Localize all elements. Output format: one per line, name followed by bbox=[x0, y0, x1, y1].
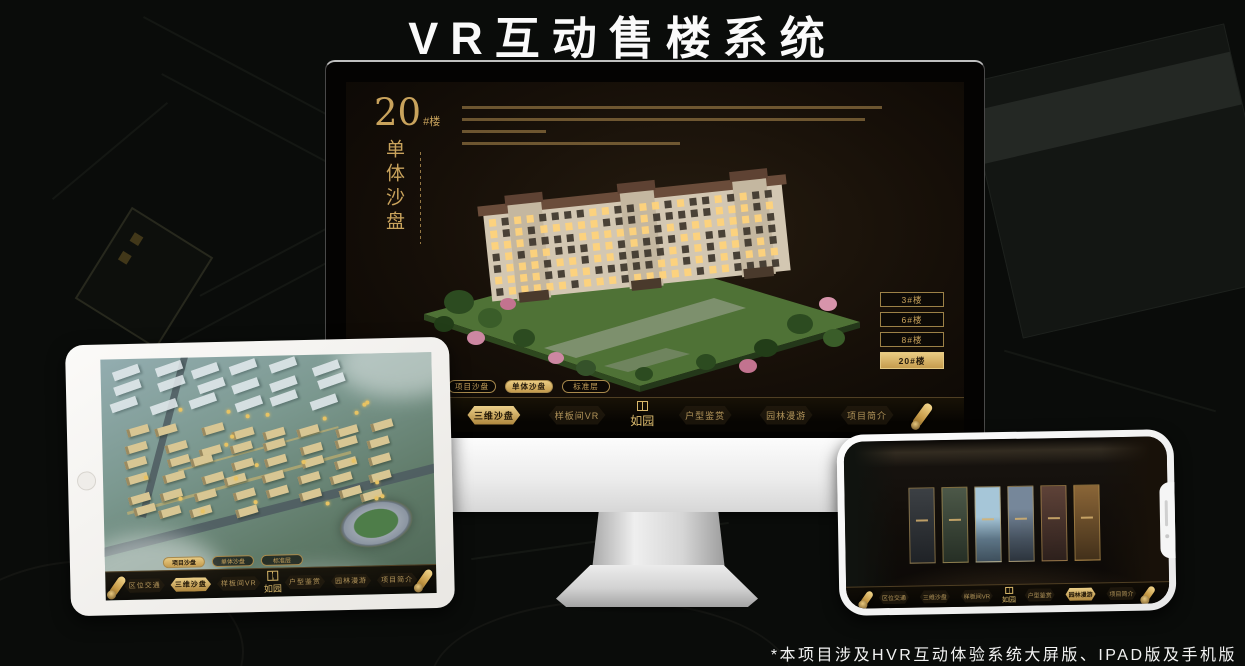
background-plaque bbox=[75, 207, 214, 349]
nav-item-showroom-vr[interactable]: 样板间VR bbox=[545, 406, 610, 425]
aerial-building bbox=[261, 469, 284, 483]
floor-button-list: 3#楼 6#楼 8#楼 20#楼 bbox=[880, 292, 944, 374]
phone-device: 区位交通 三维沙盘 样板间VR 如园 户型鉴赏 园林漫游 项目简介 bbox=[836, 429, 1176, 616]
page-root: VR互动售楼系统 20#楼 单体沙盘 bbox=[0, 0, 1245, 666]
aerial-building bbox=[234, 395, 262, 412]
brand-logo: 如园 bbox=[264, 571, 283, 595]
gallery-panel[interactable] bbox=[1007, 486, 1034, 562]
aerial-building bbox=[232, 488, 255, 502]
aerial-building bbox=[264, 454, 287, 468]
tab-project-sandbox[interactable]: 项目沙盘 bbox=[448, 380, 496, 393]
camera-dot-icon bbox=[1165, 534, 1169, 538]
gallery-panel[interactable] bbox=[908, 487, 935, 563]
aerial-building bbox=[126, 424, 149, 438]
aerial-building bbox=[227, 409, 231, 413]
nav-item-project-intro[interactable]: 项目简介 bbox=[837, 406, 897, 425]
stadium bbox=[335, 492, 418, 554]
nav-item-garden-tour[interactable]: 园林漫游 bbox=[756, 406, 816, 425]
tablet-navbar: 区位交通 三维沙盘 样板间VR 如园 户型鉴赏 园林漫游 项目简介 bbox=[105, 564, 437, 601]
sandbox-tabs: 项目沙盘 单体沙盘 标准层 bbox=[448, 380, 610, 393]
aerial-building bbox=[381, 494, 385, 498]
aerial-building bbox=[224, 443, 228, 447]
brand-logo: 如园 bbox=[630, 401, 654, 429]
aerial-building bbox=[374, 496, 378, 500]
footnote: *本项目涉及HVR互动体验系统大屏版、IPAD版及手机版 bbox=[771, 641, 1237, 665]
scroll-menu-icon[interactable] bbox=[911, 402, 934, 428]
aerial-building bbox=[255, 463, 259, 467]
nav-item-location[interactable]: 区位交通 bbox=[122, 578, 168, 593]
seal-icon bbox=[267, 571, 278, 581]
aerial-building bbox=[375, 480, 379, 484]
aerial-building bbox=[231, 427, 254, 441]
aerial-building bbox=[317, 372, 345, 389]
tab-single-sandbox[interactable]: 单体沙盘 bbox=[505, 380, 553, 393]
aerial-building bbox=[163, 470, 186, 484]
aerial-building bbox=[165, 440, 188, 454]
aerial-building bbox=[229, 358, 257, 375]
tab-standard-floor[interactable]: 标准层 bbox=[562, 380, 610, 393]
aerial-building bbox=[354, 410, 358, 414]
phone-screen: 区位交通 三维沙盘 样板间VR 如园 户型鉴赏 园林漫游 项目简介 bbox=[844, 436, 1170, 609]
aerial-building bbox=[371, 418, 394, 432]
aerial-building bbox=[197, 377, 225, 394]
scroll-menu-icon[interactable] bbox=[108, 575, 127, 598]
aerial-building bbox=[191, 362, 219, 379]
aerial-building bbox=[179, 408, 183, 412]
nav-item-location[interactable]: 区位交通 bbox=[877, 591, 911, 605]
aerial-building bbox=[113, 379, 141, 396]
aerial-building bbox=[232, 377, 260, 394]
nav-item-project-intro[interactable]: 项目简介 bbox=[1104, 587, 1138, 601]
nav-item-unit-plans[interactable]: 户型鉴赏 bbox=[1023, 588, 1057, 602]
floor-button-3[interactable]: 3#楼 bbox=[880, 292, 944, 307]
tab-standard-floor[interactable]: 标准层 bbox=[261, 554, 303, 566]
aerial-building bbox=[149, 398, 177, 415]
floor-button-6[interactable]: 6#楼 bbox=[880, 312, 944, 327]
gallery-panel[interactable] bbox=[974, 486, 1001, 562]
tab-project-sandbox[interactable]: 项目沙盘 bbox=[163, 556, 205, 568]
nav-item-showroom-vr[interactable]: 样板间VR bbox=[959, 589, 996, 603]
building-3d-render[interactable] bbox=[404, 152, 874, 392]
aerial-building bbox=[310, 394, 338, 411]
floor-button-20[interactable]: 20#楼 bbox=[880, 352, 944, 369]
aerial-building bbox=[299, 442, 322, 456]
aerial-building bbox=[326, 502, 330, 506]
phone-navbar: 区位交通 三维沙盘 样板间VR 如园 户型鉴赏 园林漫游 项目简介 bbox=[846, 581, 1169, 609]
building-subtitle: 单体沙盘 bbox=[380, 139, 407, 235]
aerial-building bbox=[124, 456, 147, 470]
aerial-building bbox=[368, 453, 391, 467]
scroll-menu-icon[interactable] bbox=[415, 568, 434, 591]
building-number: 20 bbox=[374, 91, 421, 134]
nav-item-3d-sandbox[interactable]: 三维沙盘 bbox=[918, 590, 952, 604]
brand-logo: 如园 bbox=[1002, 586, 1016, 604]
aerial-building bbox=[365, 401, 369, 405]
gallery-panel[interactable] bbox=[1040, 485, 1067, 561]
tablet-device: 项目沙盘 单体沙盘 标准层 区位交通 三维沙盘 样板间VR 如园 户型鉴赏 园林… bbox=[65, 337, 455, 617]
nav-item-3d-sandbox[interactable]: 三维沙盘 bbox=[464, 406, 524, 425]
scroll-menu-icon[interactable] bbox=[859, 589, 874, 606]
aerial-building bbox=[323, 417, 327, 421]
seal-icon bbox=[637, 401, 648, 411]
building-number-suffix: #楼 bbox=[423, 116, 440, 128]
aerial-building bbox=[246, 414, 250, 418]
aerial-building bbox=[193, 489, 216, 503]
aerial-building bbox=[234, 477, 238, 481]
nav-item-garden-tour[interactable]: 园林漫游 bbox=[1063, 587, 1097, 601]
tab-single-sandbox[interactable]: 单体沙盘 bbox=[212, 555, 254, 567]
aerial-building bbox=[268, 356, 296, 373]
aerial-building bbox=[297, 471, 320, 485]
aerial-building bbox=[125, 441, 148, 455]
aerial-building bbox=[253, 500, 257, 504]
aerial-building bbox=[329, 471, 352, 485]
tablet-home-button[interactable] bbox=[77, 471, 96, 490]
speaker-slit-icon bbox=[1165, 500, 1168, 526]
scroll-menu-icon[interactable] bbox=[1141, 584, 1156, 601]
page-title: VR互动售楼系统 bbox=[0, 2, 1245, 67]
nav-item-3d-sandbox[interactable]: 三维沙盘 bbox=[168, 577, 214, 592]
aerial-building bbox=[266, 484, 289, 498]
nav-item-garden-tour[interactable]: 园林漫游 bbox=[328, 573, 374, 588]
nav-item-unit-plans[interactable]: 户型鉴赏 bbox=[282, 574, 328, 589]
nav-item-showroom-vr[interactable]: 样板间VR bbox=[214, 576, 264, 591]
aerial-building bbox=[265, 413, 269, 417]
aerial-building bbox=[201, 471, 224, 485]
description-paragraph bbox=[462, 106, 882, 154]
aerial-building bbox=[189, 392, 217, 409]
aerial-building bbox=[231, 457, 254, 471]
aerial-building bbox=[158, 505, 181, 519]
aerial-building bbox=[201, 423, 224, 437]
background-panel bbox=[964, 23, 1245, 338]
aerial-building bbox=[109, 395, 137, 412]
monitor-stand-neck bbox=[592, 512, 725, 570]
floor-button-8[interactable]: 8#楼 bbox=[880, 332, 944, 347]
phone-notch bbox=[1159, 482, 1175, 558]
seal-icon bbox=[1005, 586, 1013, 593]
monitor-stand-base bbox=[556, 565, 758, 607]
aerial-building bbox=[167, 454, 190, 468]
nav-item-unit-plans[interactable]: 户型鉴赏 bbox=[675, 406, 735, 425]
aerial-building bbox=[367, 436, 390, 450]
aerial-building bbox=[178, 497, 182, 501]
aerial-building bbox=[144, 475, 148, 479]
gallery-panel[interactable] bbox=[1073, 484, 1100, 560]
tablet-screen: 项目沙盘 单体沙盘 标准层 区位交通 三维沙盘 样板间VR 如园 户型鉴赏 园林… bbox=[100, 352, 436, 600]
gallery-panel[interactable] bbox=[941, 487, 968, 563]
scene-gallery bbox=[908, 484, 1100, 563]
